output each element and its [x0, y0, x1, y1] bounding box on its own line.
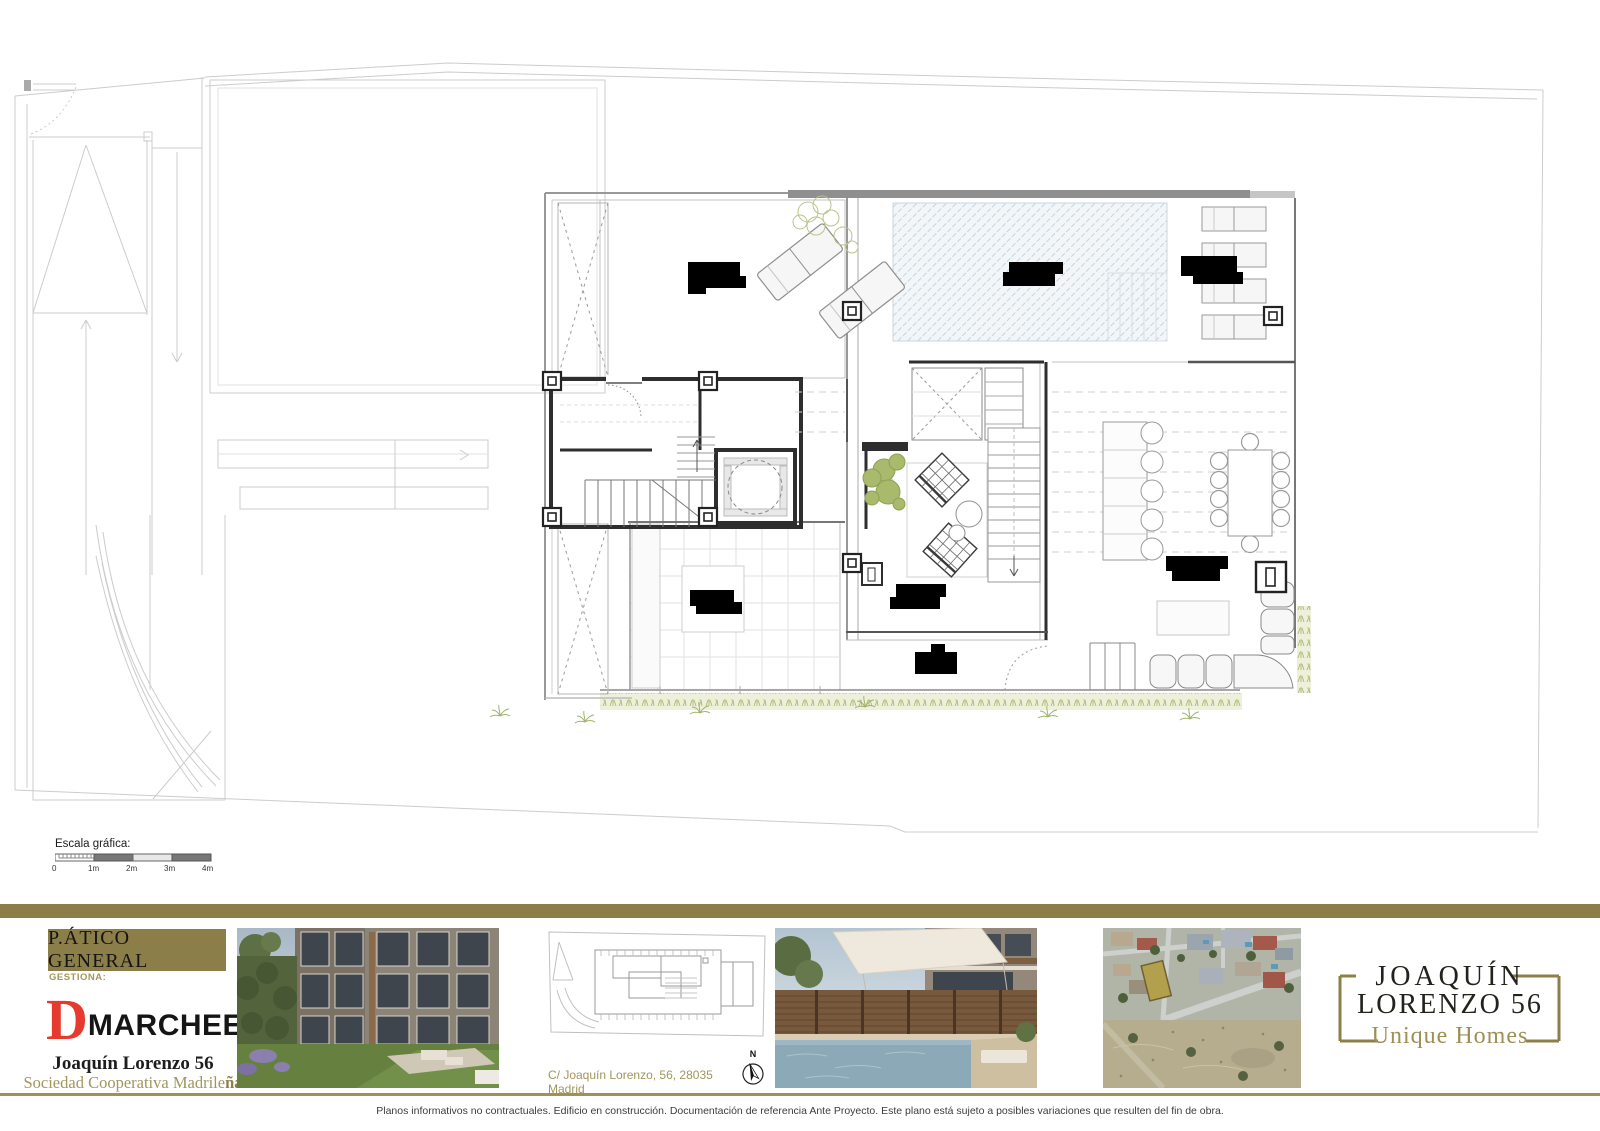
- column: [699, 372, 717, 390]
- north-label: N: [740, 1050, 766, 1059]
- scale-bar-label: Escala gráfica:: [55, 838, 130, 850]
- main-staircase: [988, 428, 1040, 582]
- floor-plan-drawing: [0, 0, 1600, 900]
- disclaimer-text: Planos informativos no contractuales. Ed…: [0, 1105, 1600, 1117]
- column: [1264, 307, 1282, 325]
- footer-gold-line: [0, 1093, 1600, 1096]
- stair-treads: [560, 405, 716, 527]
- patio-armchair: [915, 453, 969, 507]
- column: [1256, 562, 1286, 592]
- north-facade-wall: [788, 190, 1250, 198]
- sun-lounger: [756, 223, 843, 302]
- pool-render-photo: [775, 928, 1037, 1088]
- kitchen-island: [1103, 422, 1147, 560]
- footer-gold-bar: [0, 904, 1600, 918]
- scale-tick: 2m: [126, 864, 137, 873]
- plan-title-banner: P.ÁTICO GENERAL: [48, 929, 226, 971]
- building-render-photo: [237, 928, 499, 1088]
- scale-tick: 0: [52, 864, 56, 873]
- dmarchee-initial: D: [46, 995, 88, 1044]
- column: [543, 508, 561, 526]
- street-address: C/ Joaquín Lorenzo, 56, 28035 Madrid: [548, 1068, 738, 1096]
- rug: [1157, 601, 1229, 635]
- north-compass-icon: N: [740, 1050, 766, 1090]
- column: [543, 372, 561, 390]
- column: [843, 302, 861, 320]
- plan-sheet: Escala gráfica: 0 1m 2m 3m 4m P.ÁTICO GE…: [0, 0, 1600, 1131]
- scale-bar: [55, 853, 215, 863]
- aerial-photo: [1103, 928, 1301, 1088]
- dmarchee-name: MARCHEE: [88, 1011, 243, 1041]
- scale-tick: 1m: [88, 864, 99, 873]
- gestiona-label: GESTIONA:: [49, 972, 106, 983]
- scale-tick: 4m: [202, 864, 213, 873]
- planting-band-south: [600, 693, 1242, 710]
- joaquin-lorenzo-logo: JOAQUÍN LORENZO 56 Unique Homes: [1330, 955, 1570, 1055]
- column: [843, 554, 861, 572]
- patio-plant: [863, 454, 905, 510]
- project-name: Joaquín Lorenzo 56: [13, 1053, 253, 1075]
- dmarchee-logo: DMARCHEE: [46, 986, 236, 1044]
- planting-band-east: [1297, 606, 1311, 693]
- sun-lounger: [818, 261, 905, 340]
- logo-line2: LORENZO 56: [1330, 989, 1570, 1021]
- side-table: [956, 501, 982, 527]
- site-underlay: [15, 63, 1543, 832]
- sun-lounger: [1202, 315, 1266, 339]
- sun-lounger: [1202, 207, 1266, 231]
- side-table: [949, 525, 965, 541]
- site-plan-thumbnail: [543, 928, 771, 1042]
- column: [699, 508, 717, 526]
- logo-tagline: Unique Homes: [1330, 1023, 1570, 1050]
- scale-tick: 3m: [164, 864, 175, 873]
- elevator: [724, 458, 787, 516]
- cooperative-name: Sociedad Cooperativa Madrileña: [13, 1073, 253, 1093]
- dining-set: [1211, 434, 1290, 553]
